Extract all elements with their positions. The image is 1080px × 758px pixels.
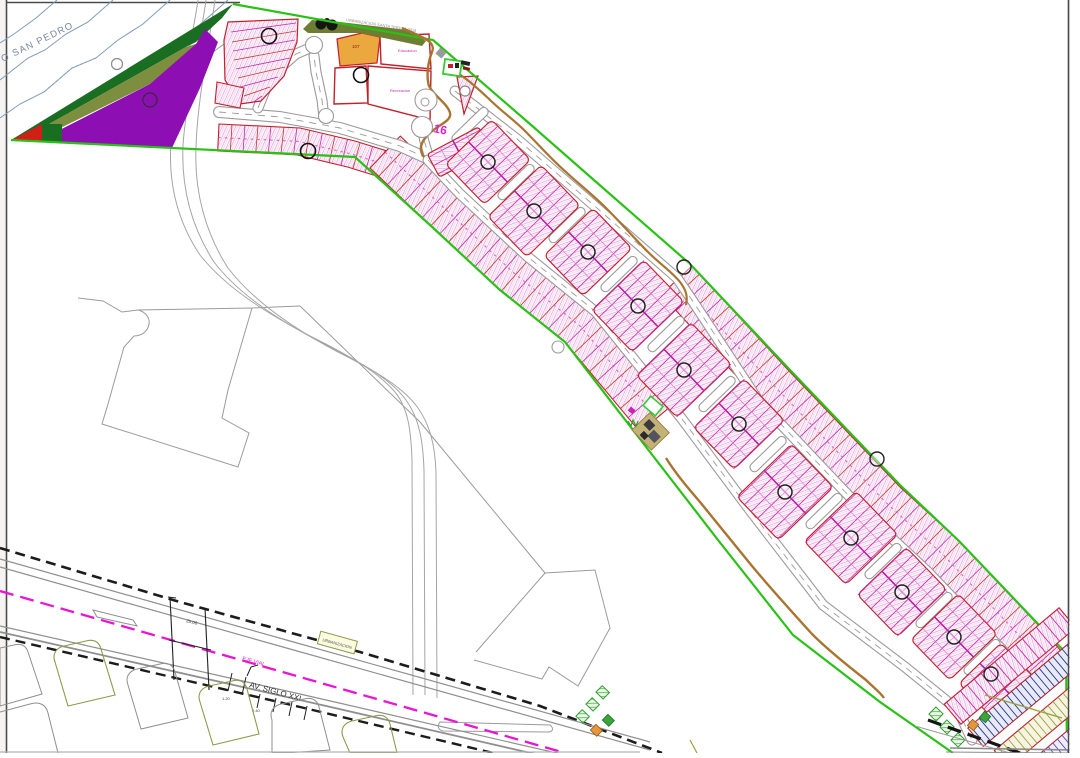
svg-text:501: 501: [143, 99, 152, 105]
svg-text:Recreacion: Recreacion: [390, 88, 410, 93]
svg-text:AREA VERDE: AREA VERDE: [138, 111, 164, 116]
svg-text:1.20: 1.20: [222, 696, 231, 701]
svg-text:Educacion: Educacion: [398, 48, 417, 53]
svg-text:107: 107: [352, 44, 360, 49]
